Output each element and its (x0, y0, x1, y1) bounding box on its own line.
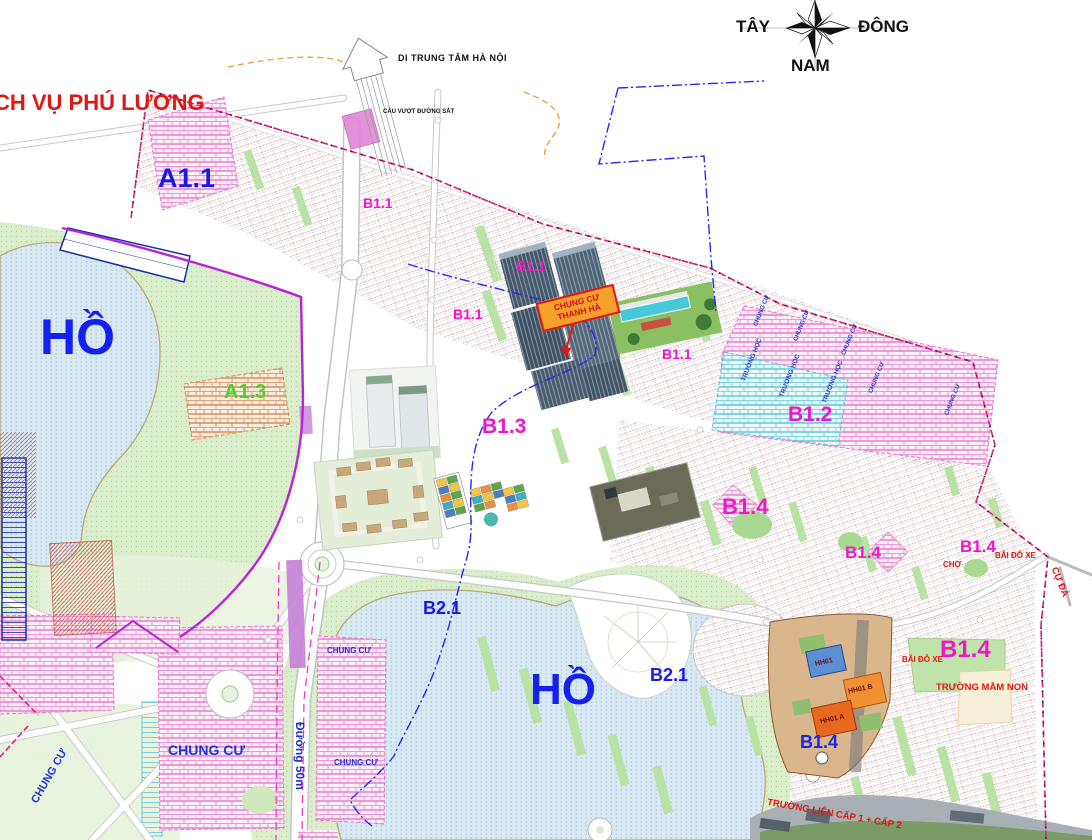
zone-label-b1-4-c: B1.4 (960, 538, 996, 555)
zone-label-b1-4-a: B1.4 (722, 496, 768, 518)
to-hanoi-center-label: DI TRUNG TÂM HÀ NỘI (398, 54, 507, 63)
mini-parcel-plan (434, 457, 532, 538)
parking-label-2: BÃI ĐỖ XE (902, 656, 943, 664)
map-canvas (0, 0, 1092, 840)
zone-label-b1-4-d: B1.4 (940, 638, 991, 662)
zone-label-b1-1-d: B1.1 (662, 347, 692, 361)
lake-label-1: HỒ (40, 312, 115, 362)
master-plan-map: TÂY ĐÔNG NAM CH VỤ PHÚ LƯƠNG DI TRUNG TÂ… (0, 0, 1092, 840)
lake-label-2: HỒ (530, 668, 596, 712)
compass-west-label: TÂY (736, 18, 770, 35)
kindergarten-cream (958, 670, 1012, 725)
zone-label-b1-4-b: B1.4 (845, 544, 881, 561)
zone-label-b2-1-b: B2.1 (650, 666, 688, 684)
zone-label-b1-4-blue: B1.4 (800, 733, 838, 751)
zone-label-a1-3: A1.3 (224, 382, 266, 402)
zone-label-b1-1-b: B1.1 (516, 259, 546, 273)
kindergarten-label: TRƯỜNG MẦM NON (936, 683, 1028, 693)
apartment-label-big: CHUNG CƯ (168, 743, 245, 757)
apartment-zone-2 (316, 636, 386, 824)
zone-label-b1-3: B1.3 (482, 416, 526, 437)
zone-label-b1-1-c: B1.1 (453, 307, 483, 321)
white-towers-photo (350, 366, 441, 462)
compass-east-label: ĐÔNG (858, 18, 909, 35)
zone-label-b1-1-a: B1.1 (363, 196, 393, 210)
phu-luong-label: CH VỤ PHÚ LƯƠNG (0, 92, 205, 114)
compass-south-label: NAM (791, 57, 830, 74)
zone-label-b2-1-a: B2.1 (423, 599, 461, 617)
apartment-label-s1: CHUNG CƯ (327, 647, 371, 655)
site-photo-strip (750, 795, 1092, 840)
railway-overpass-label: CẦU VƯỢT ĐƯỜNG SẮT (383, 109, 454, 115)
zone-label-b1-2: B1.2 (788, 404, 832, 425)
parking-icon (816, 752, 828, 764)
zone-label-a1-1: A1.1 (158, 165, 215, 192)
parking-label-1: BÃI ĐỖ XE (995, 552, 1036, 560)
market-label: CHỢ (943, 561, 961, 569)
lowrise-complex-photo (314, 450, 443, 550)
apartment-label-s2: CHUNG CƯ (334, 759, 378, 767)
road-50m-label: Đường 50m (294, 722, 306, 790)
